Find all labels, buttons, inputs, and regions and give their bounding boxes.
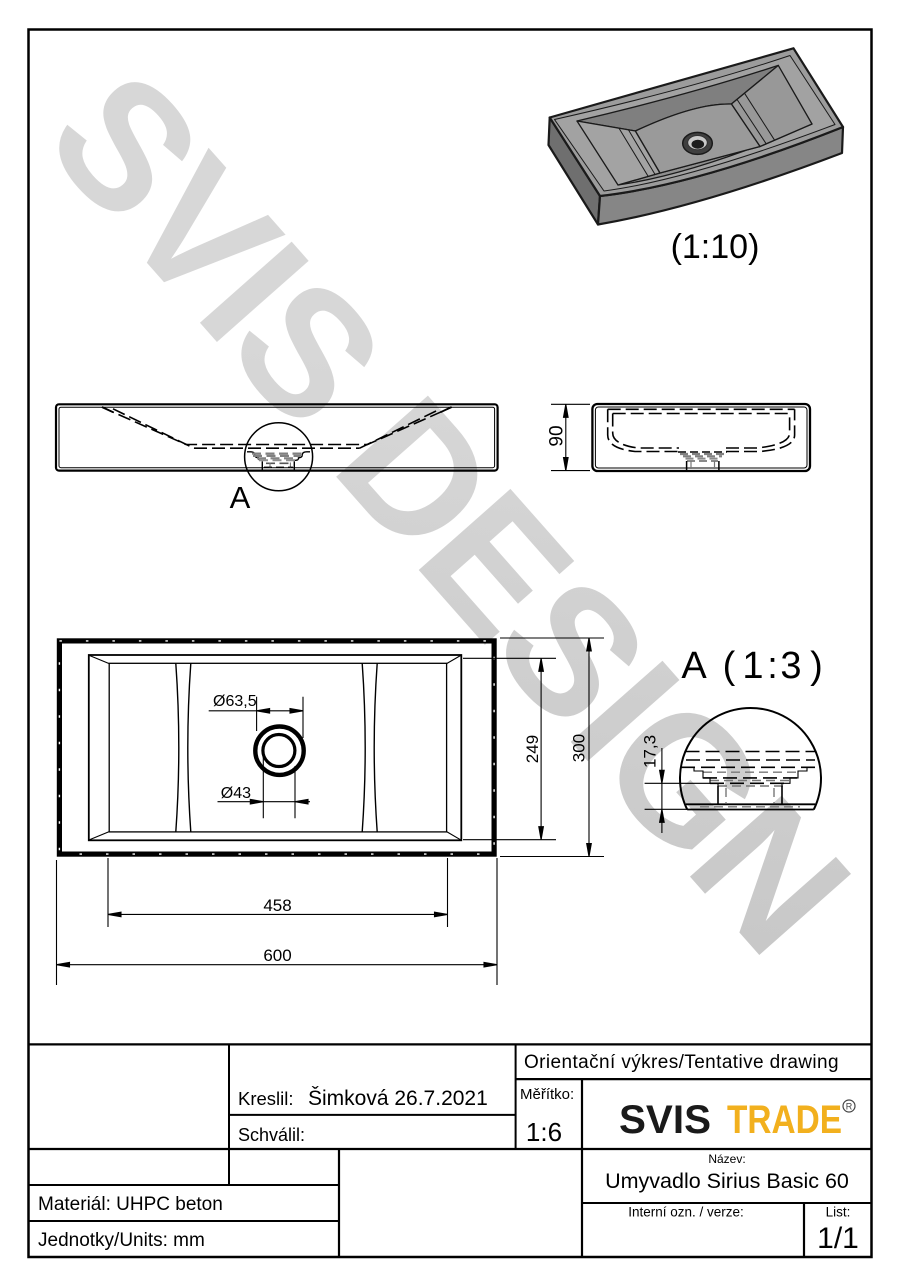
svg-text:A: A [230, 480, 251, 515]
svg-text:1:6: 1:6 [526, 1117, 562, 1147]
svg-text:Název:: Název: [708, 1152, 745, 1166]
svg-text:List:: List: [826, 1205, 851, 1220]
svg-text:Měřítko:: Měřítko: [520, 1086, 574, 1103]
svg-text:1/1: 1/1 [817, 1222, 859, 1255]
svg-text:TRADE: TRADE [727, 1098, 842, 1142]
svg-text:Jednotky/Units: mm: Jednotky/Units: mm [38, 1230, 205, 1251]
svg-text:Šimková 26.7.2021: Šimková 26.7.2021 [308, 1087, 488, 1110]
svg-text:17,3: 17,3 [641, 735, 660, 768]
svg-text:Materiál: UHPC beton: Materiál: UHPC beton [38, 1194, 223, 1215]
svg-text:(1:10): (1:10) [671, 228, 760, 266]
svg-text:90: 90 [547, 425, 568, 446]
svg-text:Ø43: Ø43 [221, 785, 251, 802]
svg-text:600: 600 [263, 946, 291, 965]
svg-text:Schválil:: Schválil: [238, 1125, 305, 1145]
svg-text:458: 458 [263, 896, 291, 915]
svg-text:249: 249 [523, 735, 542, 763]
svg-text:300: 300 [570, 734, 589, 762]
svg-text:SVIS: SVIS [619, 1098, 711, 1142]
svg-text:Kreslil:: Kreslil: [238, 1088, 294, 1109]
svg-text:Orientační výkres/Tentative dr: Orientační výkres/Tentative drawing [524, 1052, 839, 1073]
svg-text:Umyvadlo Sirius Basic 60: Umyvadlo Sirius Basic 60 [605, 1169, 849, 1193]
svg-text:Ø63,5: Ø63,5 [213, 693, 257, 710]
svg-text:R: R [846, 1102, 853, 1112]
svg-text:Interní ozn. / verze:: Interní ozn. / verze: [628, 1205, 744, 1220]
